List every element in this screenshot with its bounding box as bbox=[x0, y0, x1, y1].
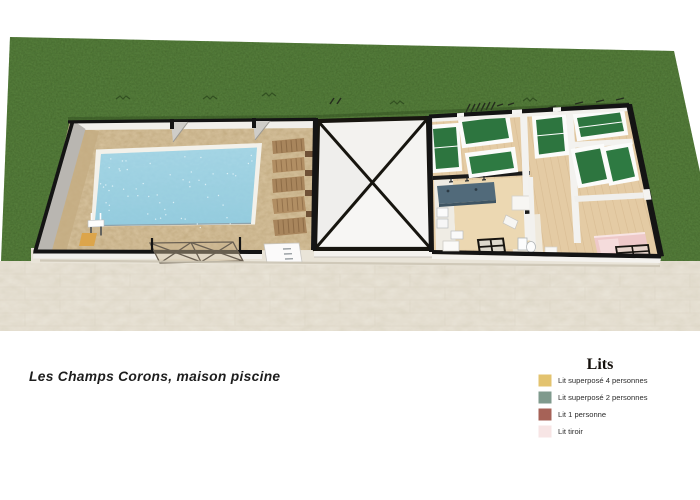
svg-text:Lit tiroir: Lit tiroir bbox=[558, 427, 583, 436]
svg-text:Lit 1 personne: Lit 1 personne bbox=[558, 410, 606, 419]
svg-text:Les Champs Corons, maison pisc: Les Champs Corons, maison piscine bbox=[29, 369, 280, 384]
svg-text:Lits: Lits bbox=[587, 356, 614, 373]
svg-text:Lit superposé 4 personnes: Lit superposé 4 personnes bbox=[558, 376, 648, 385]
svg-text:Lit superposé 2 personnes: Lit superposé 2 personnes bbox=[558, 393, 648, 402]
